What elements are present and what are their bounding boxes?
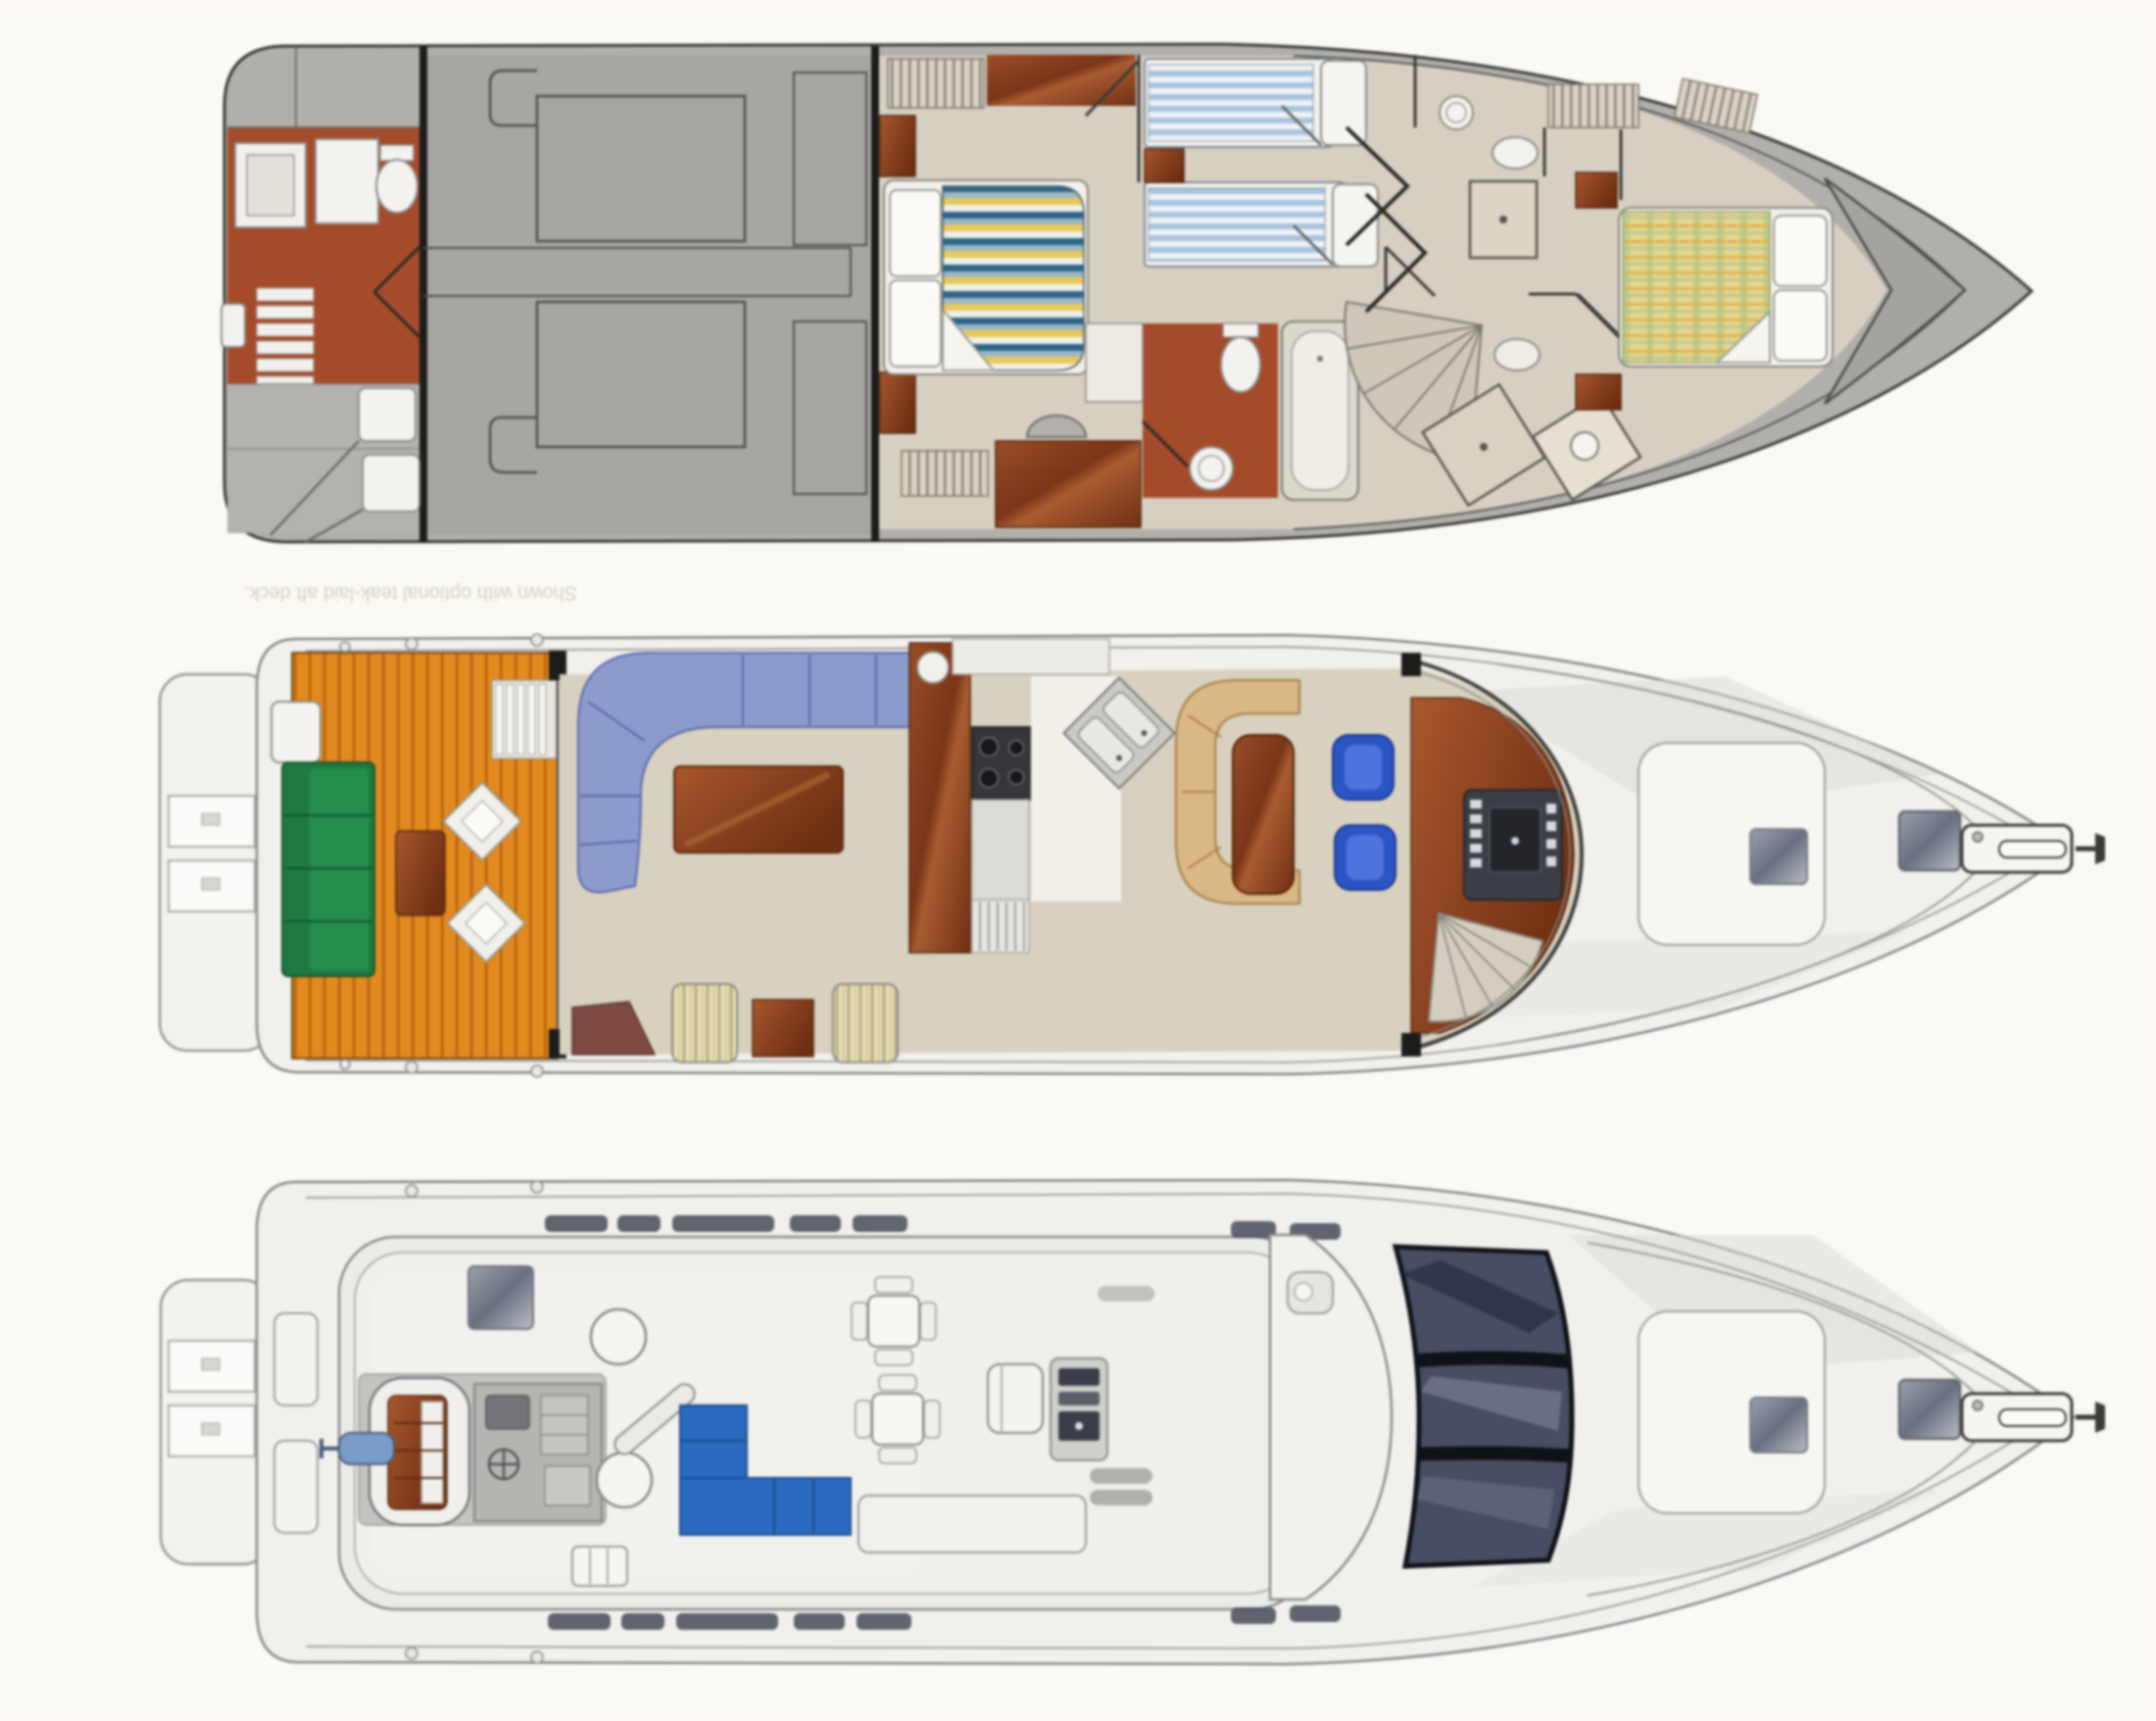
svg-text:Shown with optional teak-laid: Shown with optional teak-laid aft deck. <box>244 582 577 604</box>
